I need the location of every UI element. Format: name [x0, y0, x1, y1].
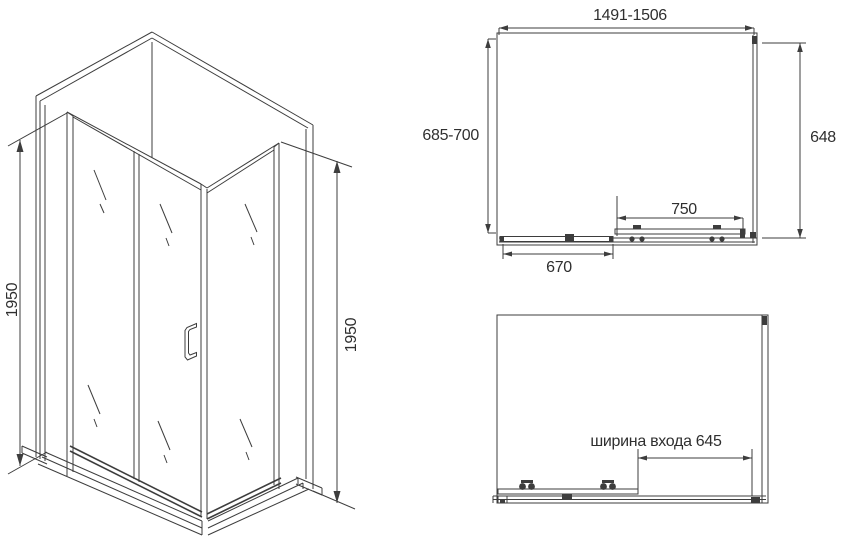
front-bottom-rail-inner: [70, 451, 202, 517]
dim-fixed-width-label: 670: [546, 259, 572, 276]
front-panel-clamp-bottom: [751, 497, 760, 503]
iso-arrowheads: [17, 140, 341, 503]
wall-right-foot-top: [296, 477, 322, 488]
front-top-rail-inner: [73, 117, 201, 190]
plan-fixed-panel-clip: [565, 234, 574, 241]
front-door-clip: [562, 494, 572, 499]
dim-left-ext-top: [8, 113, 67, 146]
front-bottom-rail-outer: [70, 446, 202, 512]
front-line-group: [493, 315, 768, 503]
dim-right-ext-bottom: [313, 491, 355, 509]
dim-door-width-label: 750: [671, 201, 697, 218]
wall-left-top-outer: [36, 32, 152, 96]
dim-height-left-label: 1950: [4, 282, 21, 317]
plan-line-group: [488, 28, 806, 259]
plan-fixed-panel-bar: [500, 237, 613, 242]
wall-right-top-outer: [152, 32, 313, 125]
wall-left-top-inner: [40, 38, 152, 101]
front-sliding-door-bar: [498, 489, 638, 494]
front-roller-1: [519, 480, 535, 490]
plan-panel-clamp-top: [752, 36, 757, 44]
iso-view-drawing: 1950 1950: [0, 0, 420, 545]
technical-drawing-canvas: 1950 1950: [0, 0, 842, 545]
front-panel-clamp-top: [762, 316, 767, 325]
plan-sliding-door-bar: [615, 229, 745, 234]
plan-outline: [497, 33, 757, 245]
iso-line-group: [8, 32, 355, 535]
dim-entrance-width-label: ширина входа 645: [590, 433, 722, 450]
tray-front-mid: [42, 457, 202, 528]
plan-view-drawing: 1491-1506 685-700 648 750 670: [420, 0, 842, 290]
glass-reflection-marks: [88, 170, 257, 463]
dim-right-ext-top: [281, 142, 352, 167]
dim-side-depth-label: 648: [810, 129, 836, 146]
side-top-rail-outer: [207, 143, 279, 188]
front-roller-2: [600, 480, 616, 490]
iso-labels: 1950 1950: [4, 282, 360, 352]
front-outline: [497, 315, 768, 503]
side-bottom-rail-outer: [207, 478, 281, 514]
dim-total-width-label: 1491-1506: [593, 7, 667, 24]
side-top-rail-inner: [207, 150, 274, 193]
wall-right-top-inner: [152, 38, 308, 128]
wall-left-foot-top: [22, 446, 47, 457]
front-view-drawing: ширина входа 645: [420, 290, 842, 545]
plan-panel-clamp-bottom: [750, 232, 756, 238]
plan-door-end-stop: [740, 229, 745, 238]
plan-labels: 1491-1506 685-700 648 750 670: [422, 7, 836, 276]
front-labels: ширина входа 645: [590, 433, 722, 450]
tray-front-top: [45, 452, 202, 521]
plan-solids: [485, 25, 803, 256]
frame-corner-post-cap: [201, 184, 207, 188]
dim-depth-label: 685-700: [422, 127, 479, 144]
side-bottom-rail-inner: [207, 483, 281, 519]
front-solids: [500, 316, 767, 503]
door-handle-icon: [185, 324, 197, 361]
dim-height-right-label: 1950: [343, 317, 360, 352]
